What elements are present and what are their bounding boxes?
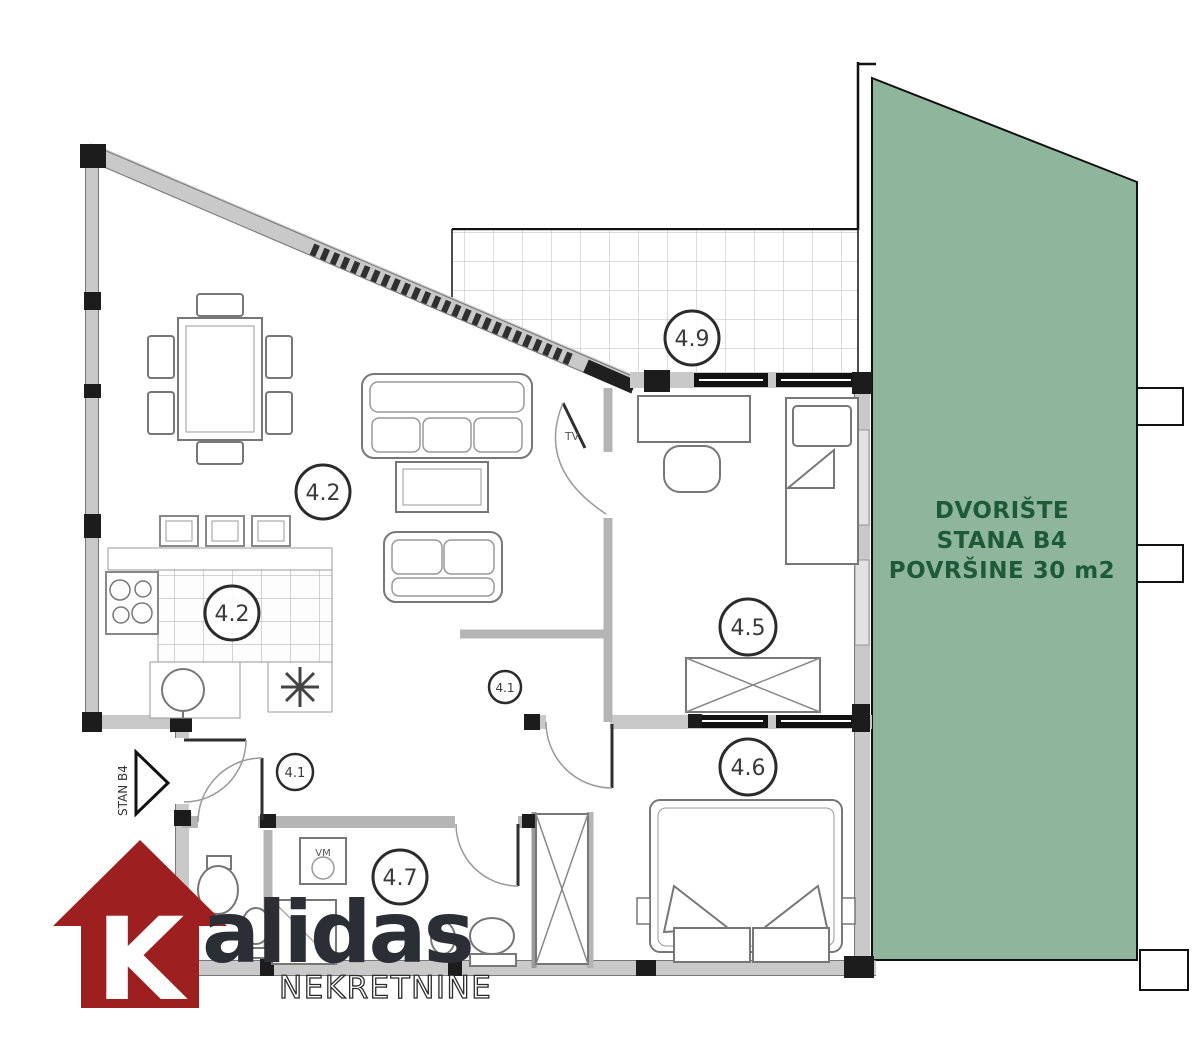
floor-plan-drawing: DVORIŠTE STANA B4 POVRŠINE 30 m2 — [0, 0, 1200, 1055]
room-label-hall: 4.1 — [489, 671, 521, 703]
desk — [638, 396, 750, 442]
floor-plan-page: DVORIŠTE STANA B4 POVRŠINE 30 m2 — [0, 0, 1200, 1055]
room-number: 4.9 — [675, 327, 710, 352]
yard-notch — [1140, 950, 1188, 990]
room-number: 4.2 — [215, 602, 250, 627]
terrace-floor — [452, 230, 858, 378]
room-label-terrace: 4.9 — [665, 311, 719, 365]
room-number: 4.1 — [285, 766, 306, 781]
sofa-large — [362, 374, 532, 458]
room-label-living: 4.2 — [296, 465, 350, 519]
entrance-arrow-icon — [136, 752, 168, 814]
entrance-door-swing — [184, 740, 246, 802]
sofa-small — [384, 532, 502, 602]
wc-door-swing — [198, 758, 262, 822]
toilet — [470, 918, 516, 966]
yard-label-line2: STANA B4 — [937, 528, 1068, 554]
room-label-bedroom1: 4.5 — [720, 599, 776, 655]
water-heater-icon — [268, 662, 332, 712]
room-number: 4.2 — [306, 481, 341, 506]
hall-closet — [536, 814, 588, 964]
tv-label: TV — [564, 430, 580, 443]
double-bed — [637, 800, 855, 962]
window-right — [855, 560, 869, 645]
coffee-table — [396, 462, 488, 512]
bedroom1-door-swing — [555, 403, 606, 514]
yard-notch — [1137, 388, 1183, 425]
room-label-bedroom2: 4.6 — [720, 739, 776, 795]
logo-subtitle: NEKRETNINE — [279, 970, 492, 1006]
desk-chair — [664, 446, 720, 492]
entrance-marker: STAN B4 — [116, 752, 168, 816]
logo-initial: K — [96, 893, 188, 1026]
yard-label-line3: POVRŠINE 30 m2 — [889, 556, 1115, 584]
room-label-kitchen: 4.2 — [205, 586, 259, 640]
dining-table — [148, 294, 292, 464]
washing-machine — [300, 838, 346, 884]
single-bed — [786, 398, 858, 564]
room-number: 4.6 — [731, 756, 766, 781]
bathroom-door-swing — [456, 824, 518, 886]
room-number: 4.5 — [731, 616, 766, 641]
yard-label-line1: DVORIŠTE — [935, 496, 1069, 524]
stove — [106, 572, 158, 634]
door-opening — [546, 714, 610, 730]
yard-area: DVORIŠTE STANA B4 POVRŠINE 30 m2 — [858, 62, 1188, 990]
kitchen-sink — [150, 662, 240, 719]
bedroom2-door-swing — [546, 722, 612, 788]
terrace-area — [452, 229, 858, 378]
room-label-corridor: 4.1 — [277, 754, 313, 790]
room-number: 4.1 — [495, 681, 514, 695]
entrance-label: STAN B4 — [116, 765, 130, 816]
wardrobe — [686, 658, 820, 712]
vm-label: VM — [315, 848, 330, 859]
entrance-opening — [173, 738, 191, 804]
logo-name: alidas — [202, 883, 472, 983]
yard-notch — [1137, 545, 1183, 582]
